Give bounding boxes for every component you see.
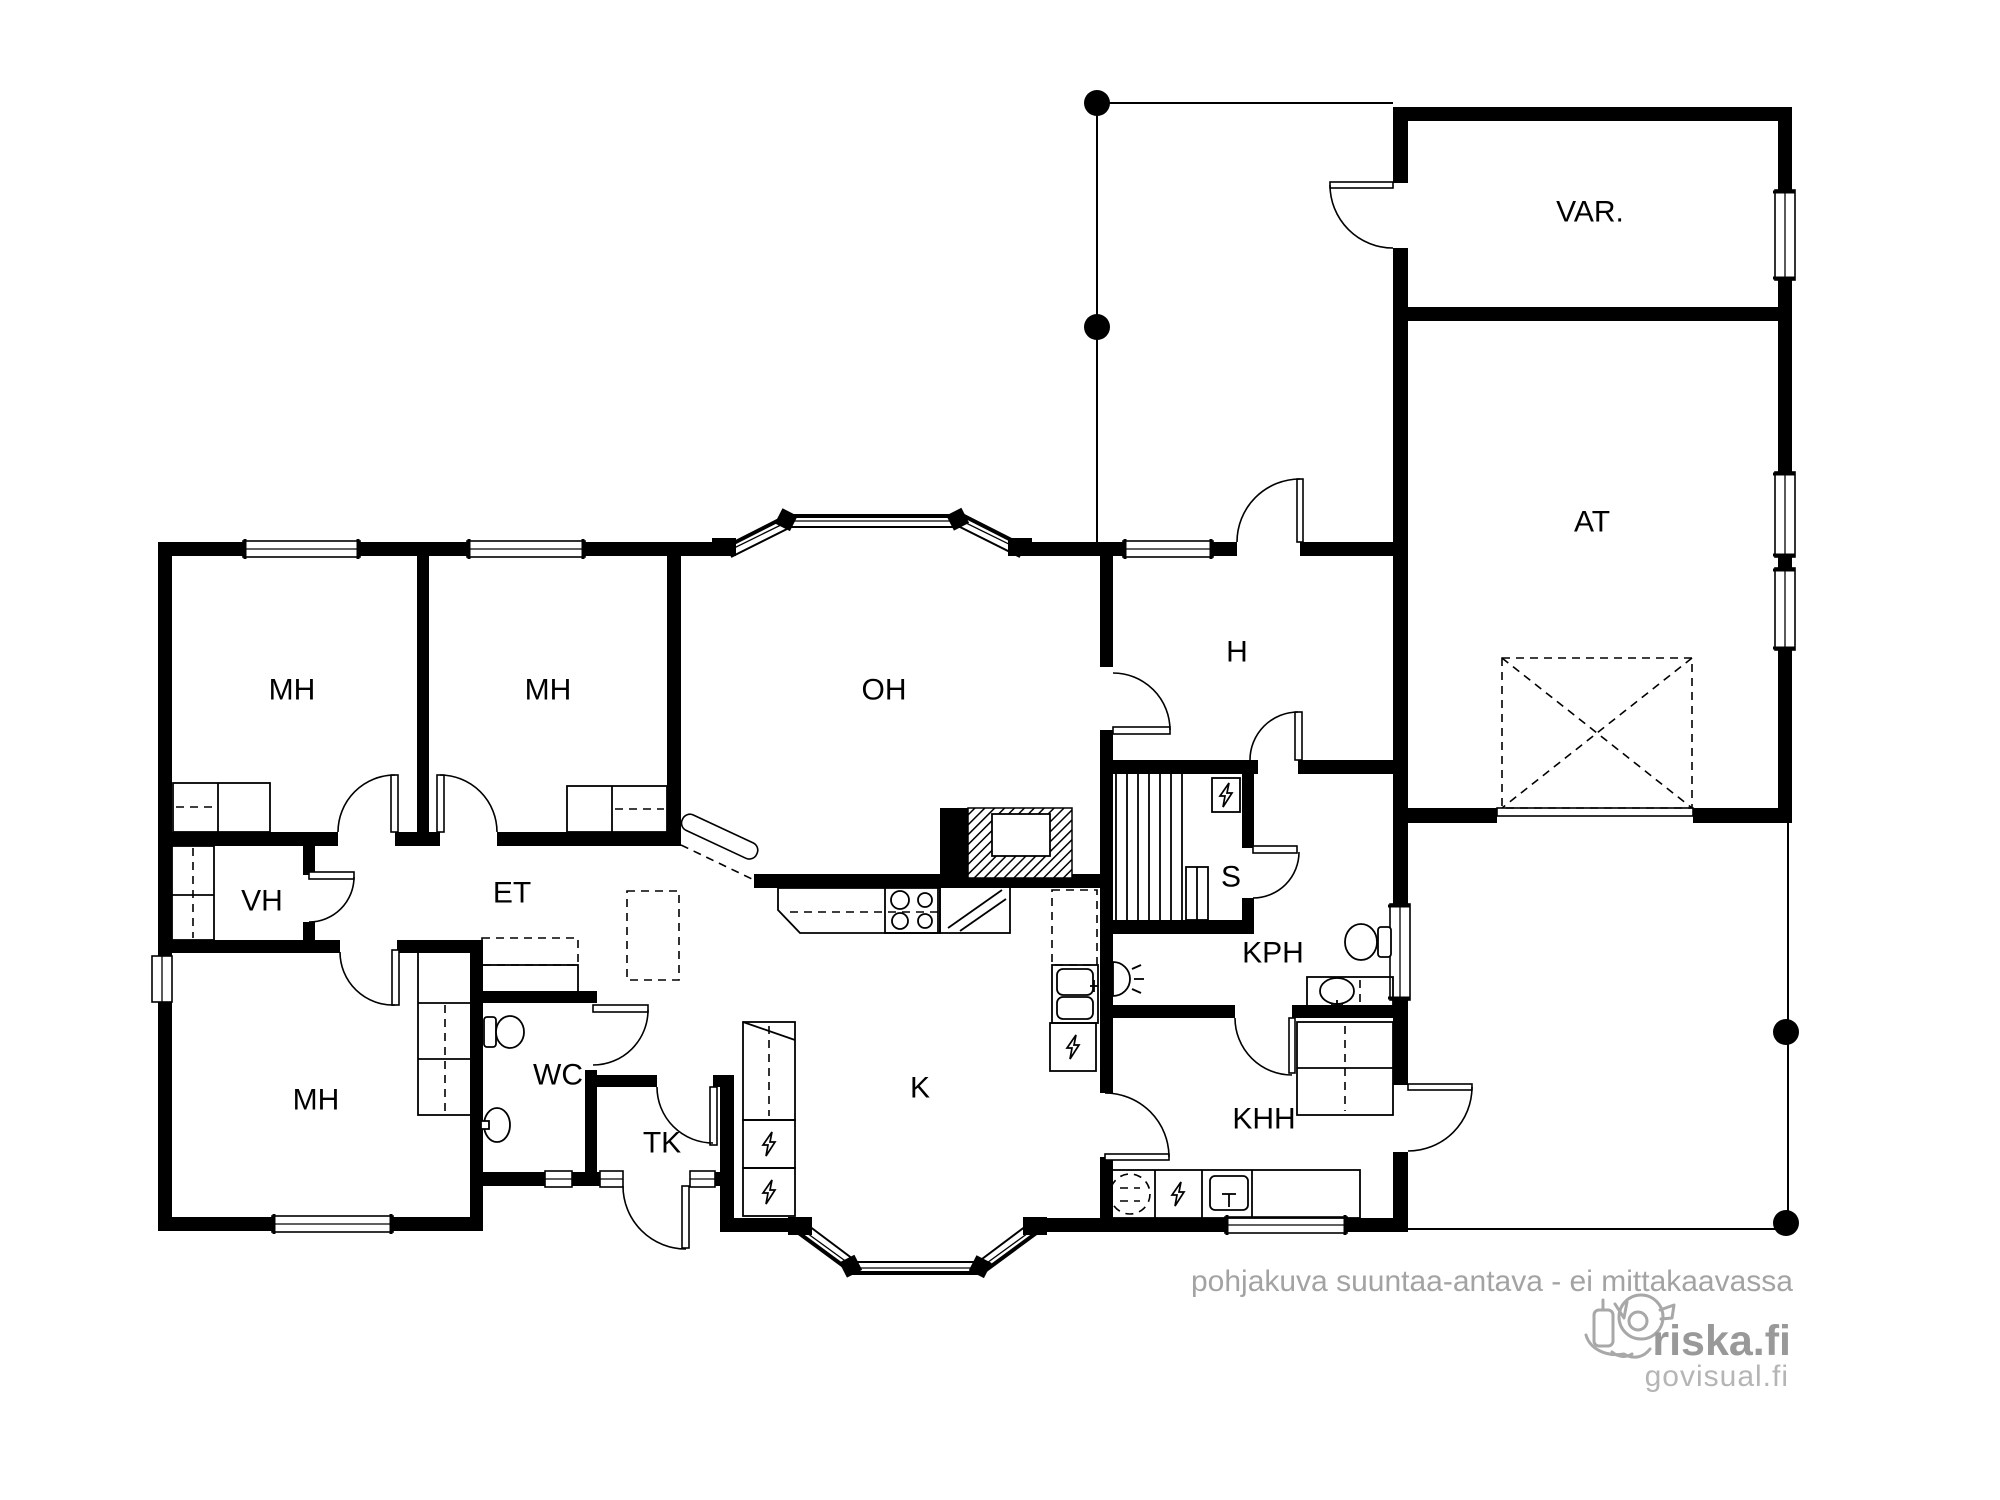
terrace-outline xyxy=(1408,823,1799,1236)
window-mh3-west xyxy=(152,956,172,1002)
sauna-benches xyxy=(1116,770,1208,920)
bay-window-bottom xyxy=(788,1217,1047,1278)
door-vh xyxy=(309,872,354,922)
room-label-k: K xyxy=(910,1072,930,1105)
room-label-et: ET xyxy=(493,877,531,910)
watermark: pohjakuva suuntaa-antava - ei mittakaava… xyxy=(1191,1265,1793,1393)
door-oh-h xyxy=(1113,673,1170,734)
carport-outline xyxy=(1084,90,1393,542)
appliance-icon xyxy=(1050,1023,1096,1071)
door-h-kph xyxy=(1250,712,1302,760)
window-mh1 xyxy=(243,539,360,559)
kitchen-counter-top xyxy=(778,888,940,933)
garage-elements xyxy=(1497,658,1693,816)
kitchen-sink-icon xyxy=(1052,965,1098,1023)
room-label-h: H xyxy=(1226,636,1248,669)
laundry-sink-icon xyxy=(1210,1176,1248,1210)
door-mh3 xyxy=(340,950,399,1005)
room-label-at: AT xyxy=(1574,506,1610,539)
island-reservation xyxy=(627,891,679,980)
door-kph-khh xyxy=(1235,1018,1295,1075)
stove-icon xyxy=(885,886,938,933)
window-at-2 xyxy=(1773,568,1795,650)
kitchen-tall-cabinet xyxy=(743,1022,795,1120)
washing-machine-icon xyxy=(1110,1174,1150,1214)
door-tk-exterior xyxy=(623,1186,689,1249)
door-sliding-et-oh xyxy=(679,812,761,879)
sub-brand-text: govisual.fi xyxy=(1645,1360,1789,1393)
shower-icon xyxy=(1113,962,1144,996)
room-label-kph: KPH xyxy=(1242,937,1304,970)
fixtures xyxy=(172,770,1393,1218)
garage-door xyxy=(1497,808,1693,816)
wardrobe-mh2 xyxy=(567,786,667,832)
kitchen-counter-right xyxy=(1050,890,1098,1071)
door-mh2 xyxy=(437,775,497,832)
door-khh-terrace xyxy=(1408,1084,1472,1151)
room-label-khh: KHH xyxy=(1232,1103,1295,1136)
room-label-mh3: MH xyxy=(293,1084,340,1117)
door-wc xyxy=(593,1005,648,1065)
wardrobe-mh3 xyxy=(418,947,472,1115)
bay-window-top xyxy=(712,508,1032,557)
toilet-icon xyxy=(1345,924,1391,960)
walls xyxy=(158,107,1792,1232)
column-post-icon xyxy=(1084,90,1110,116)
room-labels: MH MH OH H VAR. AT VH ET MH WC TK K S KP… xyxy=(241,196,1624,1160)
windows xyxy=(152,190,1795,1235)
door-k-khh xyxy=(1105,1093,1169,1160)
room-label-var: VAR. xyxy=(1556,196,1624,229)
window-mh2 xyxy=(467,539,585,559)
fireplace xyxy=(940,808,1072,878)
door-var xyxy=(1330,182,1393,248)
cabinet-vh xyxy=(172,846,214,940)
room-label-vh: VH xyxy=(241,885,283,918)
brand-text: riska.fi xyxy=(1652,1317,1791,1365)
sauna-stove-icon xyxy=(1212,778,1240,812)
window-wc xyxy=(545,1171,572,1187)
column-post-icon xyxy=(1084,314,1110,340)
door-sauna xyxy=(1253,846,1299,898)
appliance-icon xyxy=(743,1168,795,1216)
room-label-wc: WC xyxy=(533,1059,583,1092)
sink-icon xyxy=(481,1108,510,1142)
closet-et xyxy=(482,938,578,992)
column-post-icon xyxy=(1773,1210,1799,1236)
garage-reservation-x xyxy=(1502,658,1692,808)
room-label-mh1: MH xyxy=(269,674,316,707)
door-mh1 xyxy=(338,775,398,832)
window-mh3-south xyxy=(272,1214,393,1234)
room-label-oh: OH xyxy=(862,674,907,707)
room-label-s: S xyxy=(1221,861,1241,894)
window-h xyxy=(1123,539,1213,559)
floor-plan-page: MH MH OH H VAR. AT VH ET MH WC TK K S KP… xyxy=(0,0,2000,1500)
window-at-1 xyxy=(1773,472,1795,557)
room-label-mh2: MH xyxy=(525,674,572,707)
bathroom-sink xyxy=(1307,977,1393,1008)
room-label-tk: TK xyxy=(643,1127,681,1160)
appliance-icon xyxy=(743,1120,795,1168)
wardrobe-mh1 xyxy=(173,783,270,832)
toilet-icon xyxy=(484,1016,524,1048)
khh-counter-bottom xyxy=(1106,1170,1360,1218)
disclaimer-text: pohjakuva suuntaa-antava - ei mittakaava… xyxy=(1191,1265,1793,1298)
column-post-icon xyxy=(1773,1019,1799,1045)
window-var xyxy=(1773,190,1795,280)
window-tk-left xyxy=(600,1171,623,1187)
floor-plan-svg: MH MH OH H VAR. AT VH ET MH WC TK K S KP… xyxy=(0,0,2000,1500)
door-entry-h xyxy=(1237,479,1303,542)
khh-counter-right xyxy=(1297,1022,1393,1115)
window-tk-right xyxy=(690,1171,715,1187)
worktop-appliance xyxy=(940,884,1010,933)
appliance-icon xyxy=(1172,1182,1184,1206)
